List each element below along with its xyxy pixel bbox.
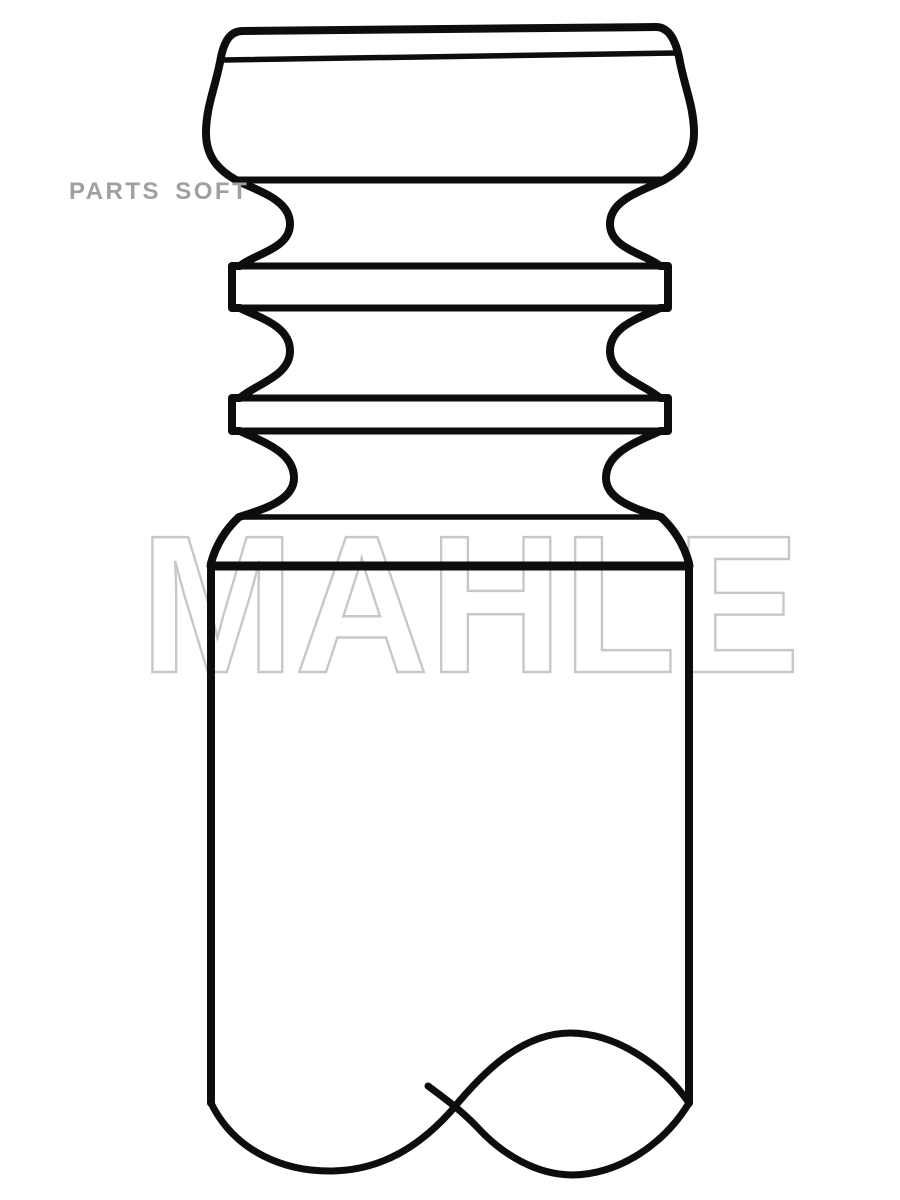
- product-image: MAHLE PARTS SOFT: [0, 0, 900, 1200]
- parts-soft-watermark-text: PARTS SOFT: [69, 178, 249, 205]
- brand-watermark-text: MAHLE: [140, 495, 800, 714]
- valve-drawing-canvas: MAHLE PARTS SOFT: [0, 0, 900, 1200]
